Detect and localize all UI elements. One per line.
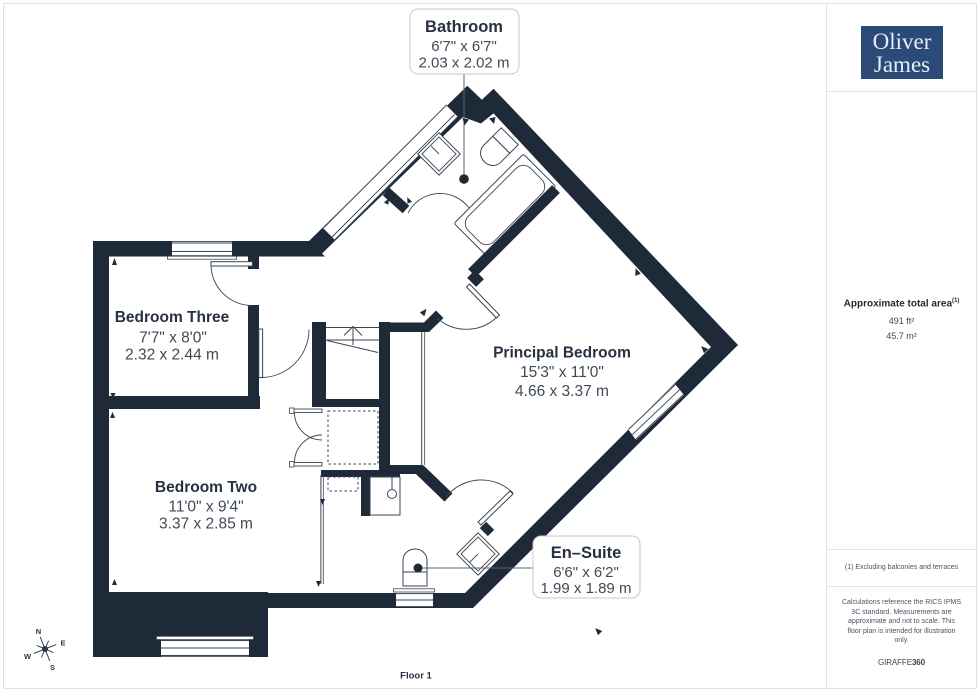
- svg-text:N: N: [36, 627, 41, 636]
- svg-text:1.99 x 1.89 m: 1.99 x 1.89 m: [541, 580, 632, 597]
- svg-text:E: E: [60, 639, 65, 648]
- svg-text:W: W: [24, 652, 32, 661]
- svg-text:11'0" x 9'4": 11'0" x 9'4": [168, 499, 243, 516]
- svg-text:4.66 x 3.37 m: 4.66 x 3.37 m: [515, 383, 609, 400]
- svg-text:6'6" x 6'2": 6'6" x 6'2": [553, 564, 619, 581]
- svg-text:S: S: [50, 663, 55, 672]
- svg-text:7'7" x 8'0": 7'7" x 8'0": [139, 330, 207, 347]
- svg-text:En–Suite: En–Suite: [551, 544, 622, 562]
- svg-text:3.37 x 2.85 m: 3.37 x 2.85 m: [159, 516, 253, 533]
- svg-text:Bedroom Three: Bedroom Three: [115, 309, 230, 326]
- svg-text:Principal Bedroom: Principal Bedroom: [493, 345, 631, 362]
- svg-text:Bathroom: Bathroom: [425, 18, 503, 36]
- svg-text:6'7" x 6'7": 6'7" x 6'7": [431, 38, 497, 55]
- svg-text:Bedroom Two: Bedroom Two: [155, 479, 257, 496]
- svg-text:2.03 x 2.02 m: 2.03 x 2.02 m: [419, 55, 510, 72]
- svg-text:15'3" x 11'0": 15'3" x 11'0": [520, 364, 604, 381]
- svg-text:Floor 1: Floor 1: [400, 671, 432, 682]
- svg-text:2.32 x 2.44 m: 2.32 x 2.44 m: [125, 347, 219, 364]
